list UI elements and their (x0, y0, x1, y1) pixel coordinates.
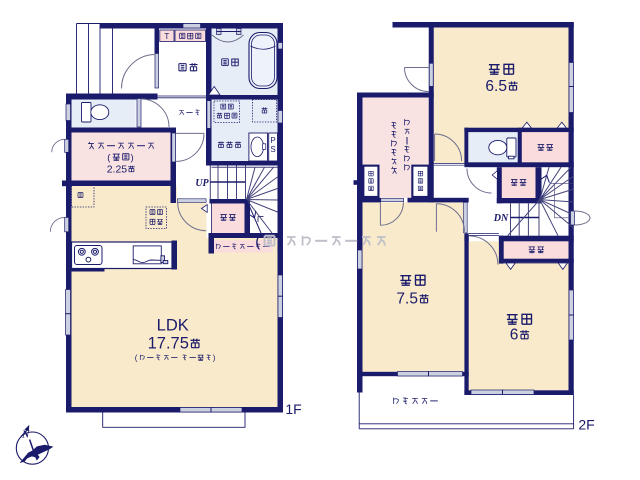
svg-text:(: ( (255, 234, 260, 251)
svg-text:2F: 2F (578, 417, 594, 433)
svg-text:N: N (21, 430, 30, 441)
svg-text:7.5: 7.5 (396, 291, 418, 308)
svg-text:UP: UP (195, 178, 209, 189)
svg-text:): ) (131, 153, 134, 164)
svg-text:LDK: LDK (157, 317, 189, 335)
svg-text:P: P (270, 136, 275, 145)
svg-text:6: 6 (510, 327, 519, 344)
svg-text:): ) (213, 354, 216, 363)
svg-text:DN: DN (493, 213, 509, 224)
svg-text:6.5: 6.5 (485, 78, 507, 95)
svg-text:S: S (270, 145, 275, 154)
svg-text:T: T (164, 32, 169, 41)
svg-text:17.75: 17.75 (148, 334, 189, 352)
svg-text:1F: 1F (285, 401, 301, 417)
svg-text:): ) (277, 234, 282, 251)
svg-text:(: ( (135, 354, 138, 363)
svg-text:2.25: 2.25 (107, 163, 128, 175)
